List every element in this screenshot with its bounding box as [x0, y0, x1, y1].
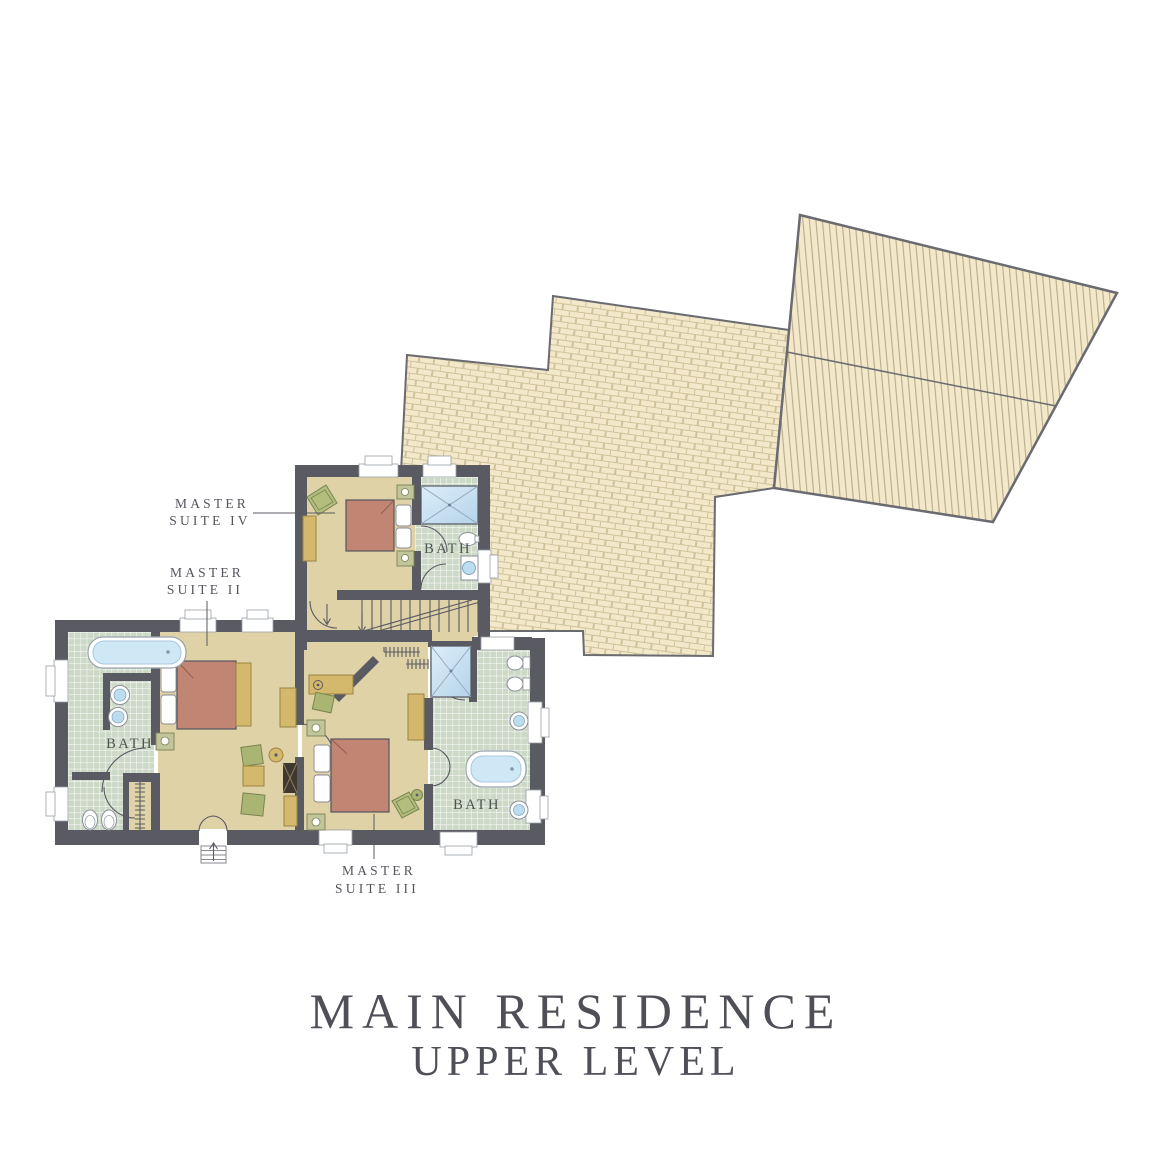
roof-plan	[401, 215, 1117, 656]
bathtub	[466, 751, 526, 787]
bed-suite2	[161, 661, 236, 729]
striped-roof	[774, 215, 1117, 522]
wall	[227, 830, 545, 845]
wall	[123, 782, 129, 830]
bed-bench	[236, 663, 251, 726]
pedestal-sink	[461, 556, 478, 580]
wardrobe	[303, 516, 316, 561]
window	[359, 456, 398, 477]
window	[478, 550, 498, 583]
title-sub: UPPER LEVEL	[411, 1039, 740, 1085]
wall	[412, 476, 421, 525]
wall	[103, 673, 158, 681]
window	[46, 787, 68, 821]
floorplan-drawing: MASTER SUITE IV MASTER SUITE II MASTER S…	[0, 0, 1152, 1152]
wall	[424, 698, 433, 750]
shower	[421, 486, 478, 524]
shelf	[284, 796, 297, 826]
bathtub	[88, 637, 186, 668]
suite4-label-line1: MASTER	[175, 496, 249, 511]
stool	[412, 790, 423, 801]
round-table	[269, 748, 283, 762]
plan-title: MAIN RESIDENCE UPPER LEVEL	[310, 983, 843, 1085]
dresser	[280, 688, 296, 727]
armchair	[241, 793, 265, 816]
shower	[431, 646, 471, 697]
window	[440, 832, 477, 855]
suite2-label-line2: SUITE II	[167, 582, 243, 597]
armchair	[241, 745, 263, 767]
wall	[295, 630, 432, 642]
wall	[55, 830, 199, 845]
fireplace	[283, 763, 297, 793]
title-main: MAIN RESIDENCE	[310, 983, 843, 1039]
wall	[424, 784, 433, 833]
window	[319, 830, 352, 853]
desk-chair	[312, 692, 334, 713]
bed-suite3	[314, 739, 389, 812]
window	[423, 456, 456, 477]
bath2-label: BATH	[106, 736, 154, 752]
window	[180, 610, 216, 632]
floorplan-page: MASTER SUITE IV MASTER SUITE II MASTER S…	[0, 0, 1152, 1152]
wall	[103, 681, 110, 730]
bed-suite4	[346, 500, 411, 551]
wall	[123, 773, 160, 782]
bath4-label: BATH	[424, 541, 472, 557]
window	[481, 637, 514, 650]
bath3-label: BATH	[453, 797, 501, 813]
side-table	[243, 766, 264, 786]
suite3-label-line1: MASTER	[342, 863, 416, 878]
window	[46, 660, 68, 702]
suite2-label-line1: MASTER	[170, 565, 244, 580]
wall	[337, 590, 480, 600]
suite4-label-line2: SUITE IV	[169, 513, 250, 528]
window	[528, 702, 549, 743]
suite3-label-line2: SUITE III	[335, 881, 419, 896]
desk	[309, 675, 353, 694]
window	[242, 610, 273, 632]
bench	[408, 694, 424, 740]
